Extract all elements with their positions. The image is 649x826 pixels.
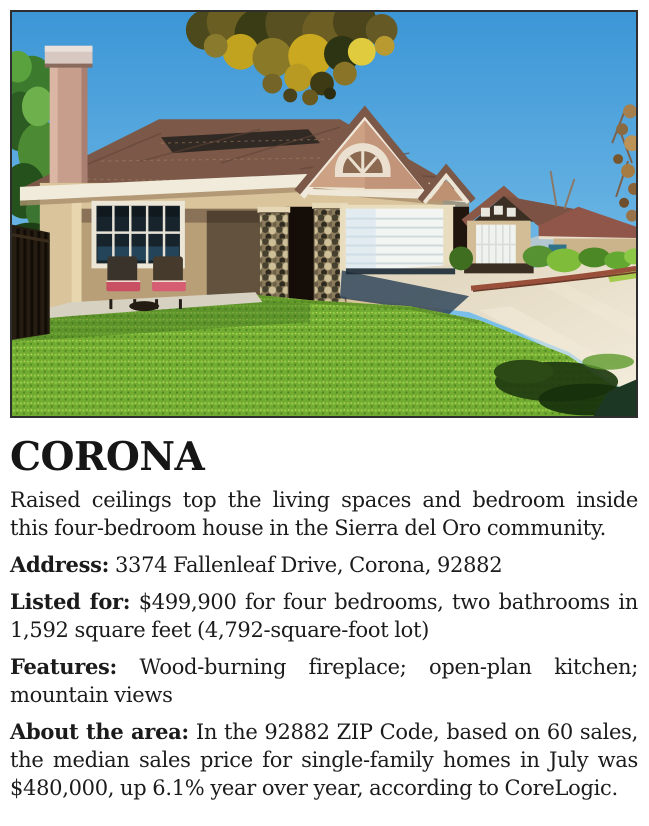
detail-address: Address: 3374 Fallenleaf Drive, Corona, … [10,551,638,579]
detail-address-label: Address: [10,552,109,577]
chimney [45,46,93,191]
house-illustration [12,12,636,416]
detail-features: Features: Wood-burning fireplace; open-p… [10,653,638,709]
side-gate [12,225,50,340]
headline: CORONA [10,438,638,477]
detail-features-label: Features: [10,654,117,679]
detail-about-area-label: About the area: [10,719,189,744]
detail-address-text: 3374 Fallenleaf Drive, Corona, 92882 [115,553,502,577]
article-body: CORONA Raised ceilings top the living sp… [0,438,649,802]
detail-listed-for-label: Listed for: [10,589,130,614]
intro-paragraph: Raised ceilings top the living spaces an… [10,486,638,542]
detail-listed-for: Listed for: $499,900 for four bedrooms, … [10,588,638,644]
detail-about-area: About the area: In the 92882 ZIP Code, b… [10,718,638,802]
listing-photo [10,10,638,418]
